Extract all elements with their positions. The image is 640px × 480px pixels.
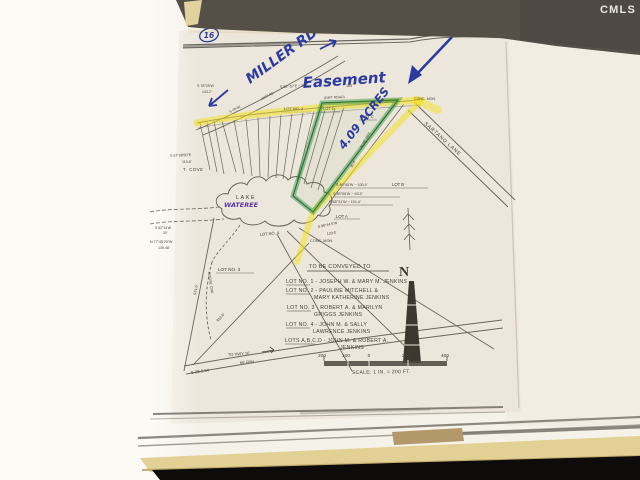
bearing-label: S 78°25'W — [197, 84, 215, 88]
conc-mon-label-2: CONC. MON. — [310, 239, 333, 243]
creek-distance-label: 30' — [163, 231, 168, 235]
scale-tick-label: 200 — [402, 353, 410, 359]
distance-label: 143.2' — [202, 90, 212, 94]
conveyance-item-5: LOTS A,B,C,D - JOHN M. & ROBERT A. — [285, 338, 388, 344]
scale-tick-label: 0 — [368, 353, 371, 359]
lot-b-label: LOT B — [392, 182, 404, 187]
scale-tick-label: 200 — [318, 353, 326, 359]
conc-mon-label: CONC. MON. — [414, 97, 436, 101]
creek-bearing-label: S 62°14'W — [155, 226, 172, 230]
scale-tick-label: 100 — [342, 353, 350, 359]
call-line-1: S 89°45'W ~ 100.0' — [336, 183, 368, 187]
conveyance-item-3: LOT NO. 3 - ROBERT A. & MARILYN — [287, 305, 382, 311]
shore-distance-label: 139.48' — [158, 246, 170, 250]
conveyance-item-5b: JENKINS — [340, 345, 364, 351]
conveyance-item-2b: MARY KATHERINE JENKINS — [314, 295, 390, 301]
conveyance-item-1: LOT NO. 1 - JOSEPH W. & MARY M. JENKINS — [286, 279, 407, 285]
wateree-annotation: WATEREE — [224, 201, 259, 209]
conveyance-item-4: LOT NO. 4 - JOHN M. & SALLY — [286, 322, 367, 328]
scale-label: SCALE: 1 IN. = 200 FT. — [352, 369, 411, 376]
lot-a-label: LOT A — [336, 214, 348, 219]
conveyance-heading: TO BE CONVEYED TO — [309, 264, 371, 270]
scale-tick-label: 400 — [441, 353, 449, 359]
call-line-3: N 85°31'W ~ 101.4' — [329, 200, 361, 204]
plat-photo: S 78°25'W 143.2' S 88°-57'E ~ 207' 183' … — [0, 0, 640, 480]
shore-bearing-label: N 77°45'20"W — [150, 240, 173, 244]
conveyance-item-2: LOT NO. 2 - PAULINE MITCHELL & — [286, 288, 378, 294]
call-line-2: S 85°06'W ~ 93.5' — [333, 192, 363, 196]
lot-no-3-label: LOT NO. 3 — [218, 267, 241, 272]
lot-d-label: LOT D — [323, 106, 335, 111]
underlying-paper — [506, 36, 640, 426]
cove-distance-label: 119.8' — [182, 160, 192, 164]
conveyance-item-4b: LAWRENCE JENKINS — [313, 329, 371, 335]
cmls-watermark: CMLS — [600, 4, 636, 16]
circled-number: 16 — [204, 31, 214, 40]
conveyance-item-3b: GRIGGS JENKINS — [314, 312, 363, 318]
north-letter: N — [399, 265, 409, 280]
cove-label: T. COVE — [183, 167, 204, 172]
lot-no-2-label: LOT NO. 2 — [284, 106, 304, 111]
